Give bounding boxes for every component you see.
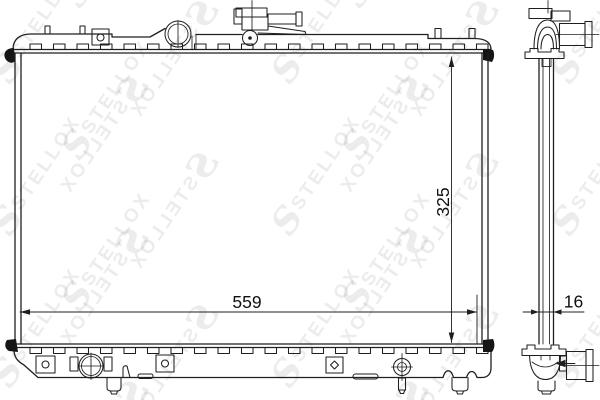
bottom-flange: [522, 345, 566, 356]
inlet-pipe-side: [556, 22, 599, 48]
bottom-foot-right: [452, 378, 468, 395]
cap-block-1: [529, 9, 552, 19]
bracket-diamond-hole: [331, 361, 339, 369]
arrowhead-bottom: [449, 333, 455, 343]
bottom-slot-2: [353, 374, 378, 379]
arrowhead-left: [531, 309, 539, 314]
top-tank: [4, 1, 494, 63]
dimension-core-width: 559: [20, 292, 477, 344]
filler-neck-front: [165, 21, 196, 50]
right-side-plate: [482, 53, 488, 344]
side-foot: [538, 381, 555, 394]
bottom-pointed-tab: [123, 366, 130, 378]
side-view: 16: [522, 1, 599, 395]
arrowhead-top: [449, 57, 455, 67]
corner-tab-bottom-right: [483, 339, 494, 352]
outlet-assembly-side: [522, 345, 599, 394]
drain-petcock: [392, 354, 413, 394]
bracket-hole: [42, 361, 49, 368]
dimension-label-width: 559: [232, 292, 261, 312]
cap-block-2: [551, 11, 570, 21]
corner-tab-top-left: [4, 48, 15, 63]
bracket-hole: [97, 34, 104, 41]
top-tab-1: [45, 26, 50, 34]
inlet-pipe-front: [234, 1, 306, 46]
bottom-serration-lines: [13, 344, 491, 348]
dimension-core-height: 325: [433, 57, 454, 343]
bottom-foot-left: [107, 378, 121, 395]
top-tab-2: [80, 26, 85, 34]
bottom-tank: [5, 339, 494, 394]
bottom-serration-teeth: [30, 348, 488, 354]
top-tab-4: [469, 29, 475, 39]
arrowhead-right: [554, 309, 562, 314]
left-side-plate: [15, 53, 21, 344]
core-strip-side: [539, 59, 554, 345]
bracket-hole: [162, 360, 169, 367]
inlet-pipe-stub: [268, 14, 296, 24]
top-tab-3: [435, 29, 441, 39]
top-serration-lines: [13, 50, 491, 54]
top-mounting-bracket: [92, 29, 109, 45]
fan-mount-boss: [70, 353, 112, 380]
radiator-drawing: 559 325: [0, 0, 600, 400]
bottom-bowl: [530, 356, 561, 380]
filler-neck-side: [525, 1, 570, 59]
bottom-mounting-bracket-left: [36, 356, 55, 373]
top-flange: [525, 49, 564, 59]
front-view: [4, 1, 494, 395]
drawing-canvas: SSTELLOXSSTELLOXSSTELLOXSSTELLOXSSTELLOX…: [0, 0, 600, 400]
dimension-label-height: 325: [433, 187, 453, 216]
bottom-mounting-bracket-right: [326, 357, 343, 373]
inlet-body: [242, 17, 268, 30]
corner-tab-bottom-left: [5, 339, 18, 352]
arrowhead-right: [467, 309, 477, 315]
dimension-label-depth: 16: [564, 292, 583, 312]
bottom-mounting-bracket-mid: [156, 355, 174, 372]
